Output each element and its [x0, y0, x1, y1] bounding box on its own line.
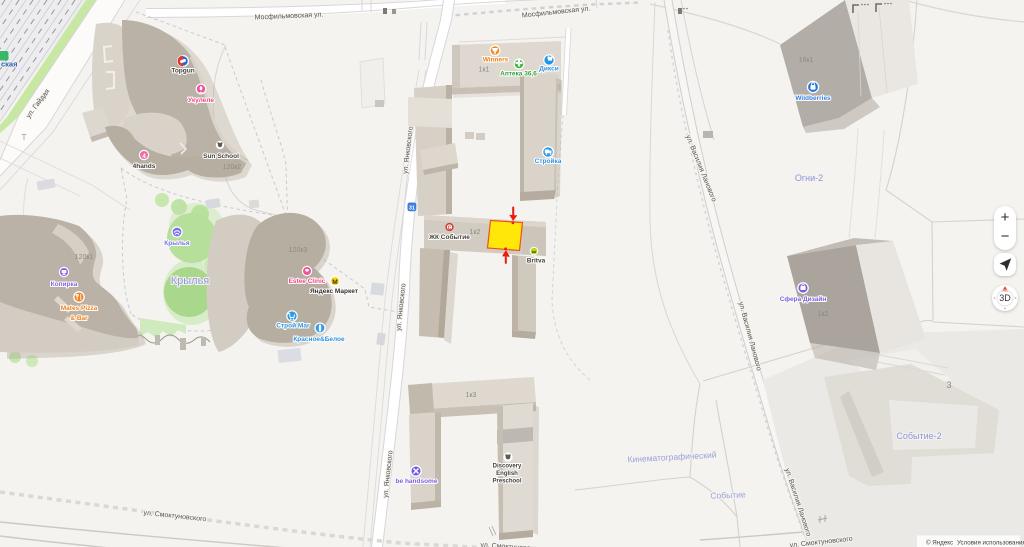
svg-text:Яндекс Маркет: Яндекс Маркет [310, 288, 358, 295]
svg-text:Дикси: Дикси [539, 66, 558, 73]
svg-text:1к2: 1к2 [818, 311, 829, 318]
svg-text:ЖК Событие: ЖК Событие [428, 233, 470, 241]
svg-text:ская: ская [1, 60, 17, 69]
svg-text:Wildberries: Wildberries [795, 95, 831, 102]
svg-text:BRI: BRI [532, 250, 537, 254]
svg-text:Аптека 36,6: Аптека 36,6 [500, 71, 537, 78]
svg-text:English: English [496, 471, 518, 477]
svg-text:3: 3 [946, 380, 951, 390]
svg-text:Discovery: Discovery [493, 464, 522, 470]
svg-text:3D: 3D [999, 293, 1011, 303]
svg-text:Событие: Событие [710, 489, 746, 500]
svg-text:Укулеле: Укулеле [188, 97, 214, 104]
svg-text:1к2: 1к2 [470, 229, 481, 236]
svg-text:Огни-2: Огни-2 [795, 173, 823, 183]
svg-text:Крылья: Крылья [164, 240, 190, 247]
svg-text:Estee Clinic: Estee Clinic [289, 278, 326, 285]
svg-text:& Bar: & Bar [70, 315, 88, 322]
svg-text:Стройка: Стройка [535, 157, 562, 165]
svg-text:Topgun: Topgun [171, 68, 194, 75]
svg-text:Britva: Britva [527, 258, 546, 265]
svg-text:Mates Pizza: Mates Pizza [61, 305, 98, 312]
svg-text:Крылья: Крылья [171, 275, 210, 287]
svg-text:Sun School: Sun School [203, 153, 239, 160]
svg-text:Копирка: Копирка [51, 281, 78, 288]
svg-text:16к1: 16к1 [799, 57, 814, 64]
svg-text:Preschool: Preschool [492, 479, 521, 485]
svg-text:4: 4 [142, 153, 146, 160]
svg-text:120к3: 120к3 [289, 247, 308, 254]
svg-text:Красное&Белое: Красное&Белое [293, 336, 345, 343]
svg-text:4hands: 4hands [133, 163, 156, 170]
svg-text:M: M [332, 279, 337, 286]
svg-text:120к2: 120к2 [223, 164, 242, 171]
svg-text:120к1: 120к1 [75, 254, 94, 261]
svg-text:be handsome: be handsome [396, 478, 438, 485]
svg-text:Условия использования: Условия использования [957, 540, 1024, 547]
svg-text:1к1: 1к1 [479, 67, 490, 74]
svg-text:Сфера Дизайн: Сфера Дизайн [780, 295, 827, 303]
svg-text:Строй Маг: Строй Маг [276, 322, 310, 330]
svg-text:Событие-2: Событие-2 [896, 431, 941, 441]
svg-text:1к3: 1к3 [466, 392, 477, 399]
svg-text:31: 31 [409, 205, 415, 211]
svg-text:© Яндекс: © Яндекс [926, 540, 953, 547]
svg-text:С: С [448, 226, 452, 232]
svg-text:Winners: Winners [483, 57, 509, 64]
